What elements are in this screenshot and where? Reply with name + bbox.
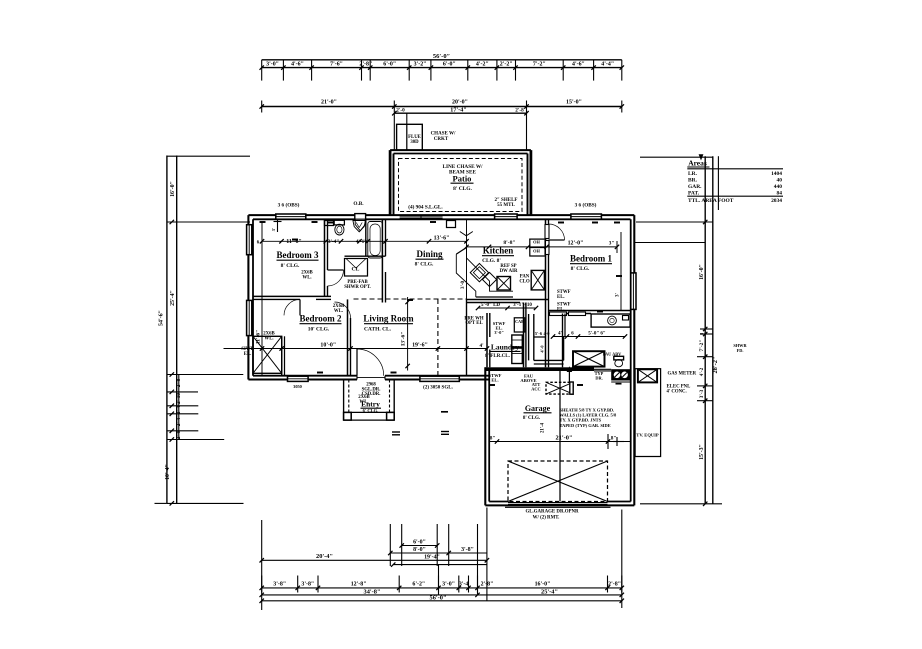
svg-text:CAB: CAB <box>515 319 524 324</box>
svg-text:10'-0": 10'-0" <box>320 343 336 349</box>
svg-text:4'-6": 4'-6" <box>572 62 585 68</box>
svg-text:3'-8": 3'-8" <box>273 582 286 588</box>
svg-text:10'-4": 10'-4" <box>165 464 171 480</box>
svg-text:6'-0": 6'-0" <box>383 62 396 68</box>
svg-text:8' CLG.: 8' CLG. <box>523 416 541 421</box>
svg-text:FAU ABV: FAU ABV <box>603 351 622 356</box>
svg-text:3'-0": 3'-0" <box>442 582 455 588</box>
svg-text:OH: OH <box>533 249 540 254</box>
svg-text:2'-10: 2'-10 <box>176 393 182 404</box>
svg-text:BR.: BR. <box>688 177 698 183</box>
svg-text:Bedroom 2: Bedroom 2 <box>299 314 342 324</box>
svg-text:20'-0": 20'-0" <box>452 99 468 105</box>
svg-text:8' CLG.: 8' CLG. <box>415 262 434 268</box>
svg-text:4'-1½: 4'-1½ <box>356 238 368 245</box>
svg-text:8'-0": 8'-0" <box>413 547 426 553</box>
svg-text:7'-6": 7'-6" <box>330 62 343 68</box>
svg-text:34'-8": 34'-8" <box>364 588 381 595</box>
svg-text:CLO: CLO <box>519 279 530 284</box>
svg-text:W/ (2) RMT.: W/ (2) RMT. <box>533 515 560 520</box>
svg-text:12'-0": 12'-0" <box>568 240 584 246</box>
svg-text:1404: 1404 <box>771 171 782 177</box>
svg-text:2'-8: 2'-8 <box>176 378 182 387</box>
svg-text:GL.GARAGE DR.OPNR: GL.GARAGE DR.OPNR <box>525 510 579 515</box>
svg-text:6'-0": 6'-0" <box>443 62 456 68</box>
svg-text:3': 3' <box>616 292 621 297</box>
svg-text:7'-2": 7'-2" <box>699 340 705 352</box>
svg-text:TV. EQUIP: TV. EQUIP <box>636 433 659 438</box>
svg-text:CHASE W/: CHASE W/ <box>431 132 456 137</box>
svg-text:56'-0": 56'-0" <box>430 595 447 602</box>
svg-text:3 6 (OBS): 3 6 (OBS) <box>575 202 597 209</box>
svg-text:WL.: WL. <box>334 309 343 314</box>
svg-text:8' CLG.: 8' CLG. <box>571 266 590 272</box>
svg-text:WL.: WL. <box>302 275 311 280</box>
svg-text:84: 84 <box>777 190 783 196</box>
svg-text:17'-4": 17'-4" <box>450 108 466 114</box>
svg-text:CRKT: CRKT <box>434 137 449 142</box>
svg-text:13'-6": 13'-6" <box>401 332 407 347</box>
svg-text:(4) 904 S.L.GL.: (4) 904 S.L.GL. <box>408 204 443 211</box>
svg-text:4'-2: 4'-2 <box>699 367 705 376</box>
svg-text:13'-6": 13'-6" <box>434 236 450 242</box>
svg-text:4'-0: 4'-0 <box>540 345 545 353</box>
svg-text:DR.: DR. <box>595 376 602 381</box>
svg-text:2'-0: 2'-0 <box>176 430 182 439</box>
svg-text:2'-2": 2'-2" <box>500 62 513 68</box>
svg-text:EL.: EL. <box>244 352 252 357</box>
svg-text:15'-3": 15'-3" <box>699 444 705 460</box>
svg-text:EL.: EL. <box>557 295 565 300</box>
svg-text:Areas: Areas <box>688 158 707 167</box>
svg-text:4'-4": 4'-4" <box>601 62 614 68</box>
svg-text:Dining: Dining <box>416 249 443 259</box>
svg-text:EL.: EL. <box>491 378 498 383</box>
svg-text:20'-4": 20'-4" <box>316 553 333 560</box>
svg-text:3": 3" <box>609 240 615 246</box>
svg-text:25'-4": 25'-4" <box>541 588 558 595</box>
svg-text:54'-6": 54'-6" <box>159 310 165 326</box>
svg-text:Bedroom 3: Bedroom 3 <box>276 250 319 260</box>
svg-text:4'-6": 4'-6" <box>291 62 304 68</box>
svg-text:21'-4: 21'-4 <box>541 422 546 433</box>
svg-text:2034: 2034 <box>771 198 782 204</box>
svg-text:Patio: Patio <box>453 173 472 183</box>
svg-text:19'-6": 19'-6" <box>412 343 428 349</box>
svg-text:4-0: 4-0 <box>544 331 551 336</box>
svg-text:8": 8" <box>490 435 496 441</box>
svg-text:2'-8: 2'-8 <box>515 108 524 114</box>
svg-text:3'-4": 3'-4" <box>328 239 339 245</box>
svg-text:PAT.: PAT. <box>688 190 700 196</box>
svg-text:3'-2": 3'-2" <box>414 62 427 68</box>
svg-text:7'-2": 7'-2" <box>533 62 546 68</box>
svg-text:2'-0: 2'-0 <box>396 108 405 114</box>
svg-text:25'-4": 25'-4" <box>170 290 176 306</box>
svg-text:3'-4: 3'-4 <box>459 582 469 588</box>
svg-text:2'-8": 2'-8" <box>359 62 372 68</box>
svg-text:WL.: WL. <box>359 400 368 405</box>
svg-text:11'-6": 11'-6" <box>256 330 262 344</box>
svg-text:4'-2": 4'-2" <box>476 62 489 68</box>
svg-text:LR.: LR. <box>688 171 698 177</box>
svg-text:3'-0: 3'-0 <box>461 280 466 289</box>
svg-text:28'-2": 28'-2" <box>712 357 719 374</box>
svg-text:8": 8" <box>611 435 617 441</box>
svg-text:TTL. AREA FOOT: TTL. AREA FOOT <box>688 198 734 204</box>
svg-text:Laundry: Laundry <box>491 343 520 352</box>
svg-text:19'-4": 19'-4" <box>424 555 440 561</box>
svg-text:12'-8": 12'-8" <box>351 582 367 588</box>
svg-text:EL.: EL. <box>557 307 565 312</box>
svg-text:16'-0": 16'-0" <box>170 181 176 197</box>
svg-text:OH: OH <box>533 240 540 245</box>
svg-text:40: 40 <box>777 177 783 183</box>
svg-text:6'-2": 6'-2" <box>412 582 425 588</box>
svg-text:3'-0": 3'-0" <box>266 62 279 68</box>
svg-text:8' CLG.: 8' CLG. <box>281 263 300 269</box>
svg-text:8'-8": 8'-8" <box>503 240 515 246</box>
svg-text:16'-0": 16'-0" <box>535 582 551 588</box>
svg-text:15'-0": 15'-0" <box>566 99 582 105</box>
svg-text:10' CLG.: 10' CLG. <box>308 326 330 332</box>
svg-text:6'-0": 6'-0" <box>413 539 426 545</box>
svg-text:ACC: ACC <box>531 387 540 392</box>
svg-text:GAR.: GAR. <box>688 184 702 190</box>
svg-text:16'-0": 16'-0" <box>699 264 705 280</box>
svg-text:Garage: Garage <box>525 404 551 413</box>
svg-text:3': 3' <box>271 228 276 231</box>
svg-text:Living Room: Living Room <box>363 314 414 324</box>
svg-text:4': 4' <box>479 343 484 349</box>
svg-text:DW AIR: DW AIR <box>500 269 518 274</box>
svg-text:5'-6: 5'-6 <box>535 331 543 336</box>
svg-text:3 6 (OBS): 3 6 (OBS) <box>278 202 300 209</box>
svg-text:8' CLG.: 8' CLG. <box>453 186 472 192</box>
svg-text:56′-0″: 56′-0″ <box>433 53 450 60</box>
svg-text:TAPED (TYP) GAR. SIDE: TAPED (TYP) GAR. SIDE <box>560 423 611 428</box>
svg-text:3'-0": 3'-0" <box>494 330 504 335</box>
svg-text:3'-8": 3'-8" <box>301 582 314 588</box>
svg-text:2'-4: 2'-4 <box>176 405 182 414</box>
svg-text:GAS METER: GAS METER <box>668 372 697 377</box>
svg-text:8: 8 <box>699 333 704 335</box>
svg-text:2'-8": 2'-8" <box>608 582 621 588</box>
svg-text:4' CONC.: 4' CONC. <box>667 389 687 394</box>
svg-text:FD.: FD. <box>737 348 744 353</box>
svg-text:SHWR OPT.: SHWR OPT. <box>344 285 370 290</box>
svg-text:21'-0": 21'-0" <box>321 99 337 105</box>
svg-text:8' FLR.CL.: 8' FLR.CL. <box>485 354 510 359</box>
svg-text:(2) 3050 SGL.: (2) 3050 SGL. <box>423 385 453 390</box>
svg-text:OPT EL: OPT EL <box>465 321 482 326</box>
svg-text:Bedroom 1: Bedroom 1 <box>570 254 613 264</box>
svg-text:21'-0": 21'-0" <box>556 434 573 441</box>
svg-text:5'-0" 6": 5'-0" 6" <box>588 331 606 336</box>
svg-text:ABOVE: ABOVE <box>520 378 536 383</box>
svg-text:3'-8": 3'-8" <box>461 547 474 553</box>
svg-text:4': 4' <box>558 331 562 336</box>
svg-text:CLG. 8': CLG. 8' <box>482 258 501 264</box>
svg-text:3'-1"+10: 3'-1"+10 <box>513 303 532 308</box>
svg-text:55 MTL: 55 MTL <box>497 203 515 208</box>
svg-text:440: 440 <box>774 184 782 190</box>
svg-text:30D: 30D <box>410 140 419 145</box>
svg-text:O.B.: O.B. <box>353 201 364 207</box>
svg-text:6' CLG.: 6' CLG. <box>363 408 379 413</box>
svg-text:5'-0" LD: 5'-0" LD <box>481 303 500 308</box>
svg-text:3'-3: 3'-3 <box>699 389 705 398</box>
svg-text:CATH. CL.: CATH. CL. <box>364 326 392 332</box>
svg-text:WL.: WL. <box>264 336 273 341</box>
svg-text:2'-4: 2'-4 <box>176 417 182 426</box>
svg-text:3050: 3050 <box>293 384 302 389</box>
